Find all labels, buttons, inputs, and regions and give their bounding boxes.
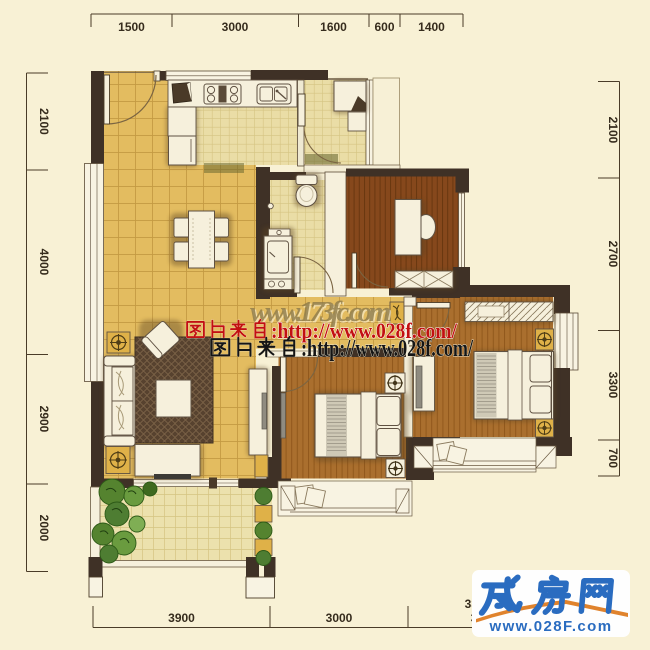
- svg-text:www.028F.com: www.028F.com: [489, 618, 613, 635]
- svg-text:3900: 3900: [168, 611, 195, 625]
- svg-text:2100: 2100: [37, 108, 51, 135]
- svg-text:2900: 2900: [37, 406, 51, 433]
- svg-text:4000: 4000: [37, 249, 51, 276]
- svg-text:600: 600: [374, 20, 394, 34]
- svg-text:3000: 3000: [326, 611, 353, 625]
- svg-text::http://www.028f.com/: :http://www.028f.com/: [301, 336, 473, 362]
- svg-text:1400: 1400: [418, 20, 445, 34]
- svg-text:2700: 2700: [606, 241, 620, 268]
- svg-text:1600: 1600: [320, 20, 347, 34]
- svg-text:3300: 3300: [606, 372, 620, 399]
- svg-text:3000: 3000: [222, 20, 249, 34]
- svg-text:2100: 2100: [606, 117, 620, 144]
- svg-text:2000: 2000: [37, 515, 51, 542]
- svg-text:700: 700: [606, 448, 620, 468]
- svg-text:1500: 1500: [118, 20, 145, 34]
